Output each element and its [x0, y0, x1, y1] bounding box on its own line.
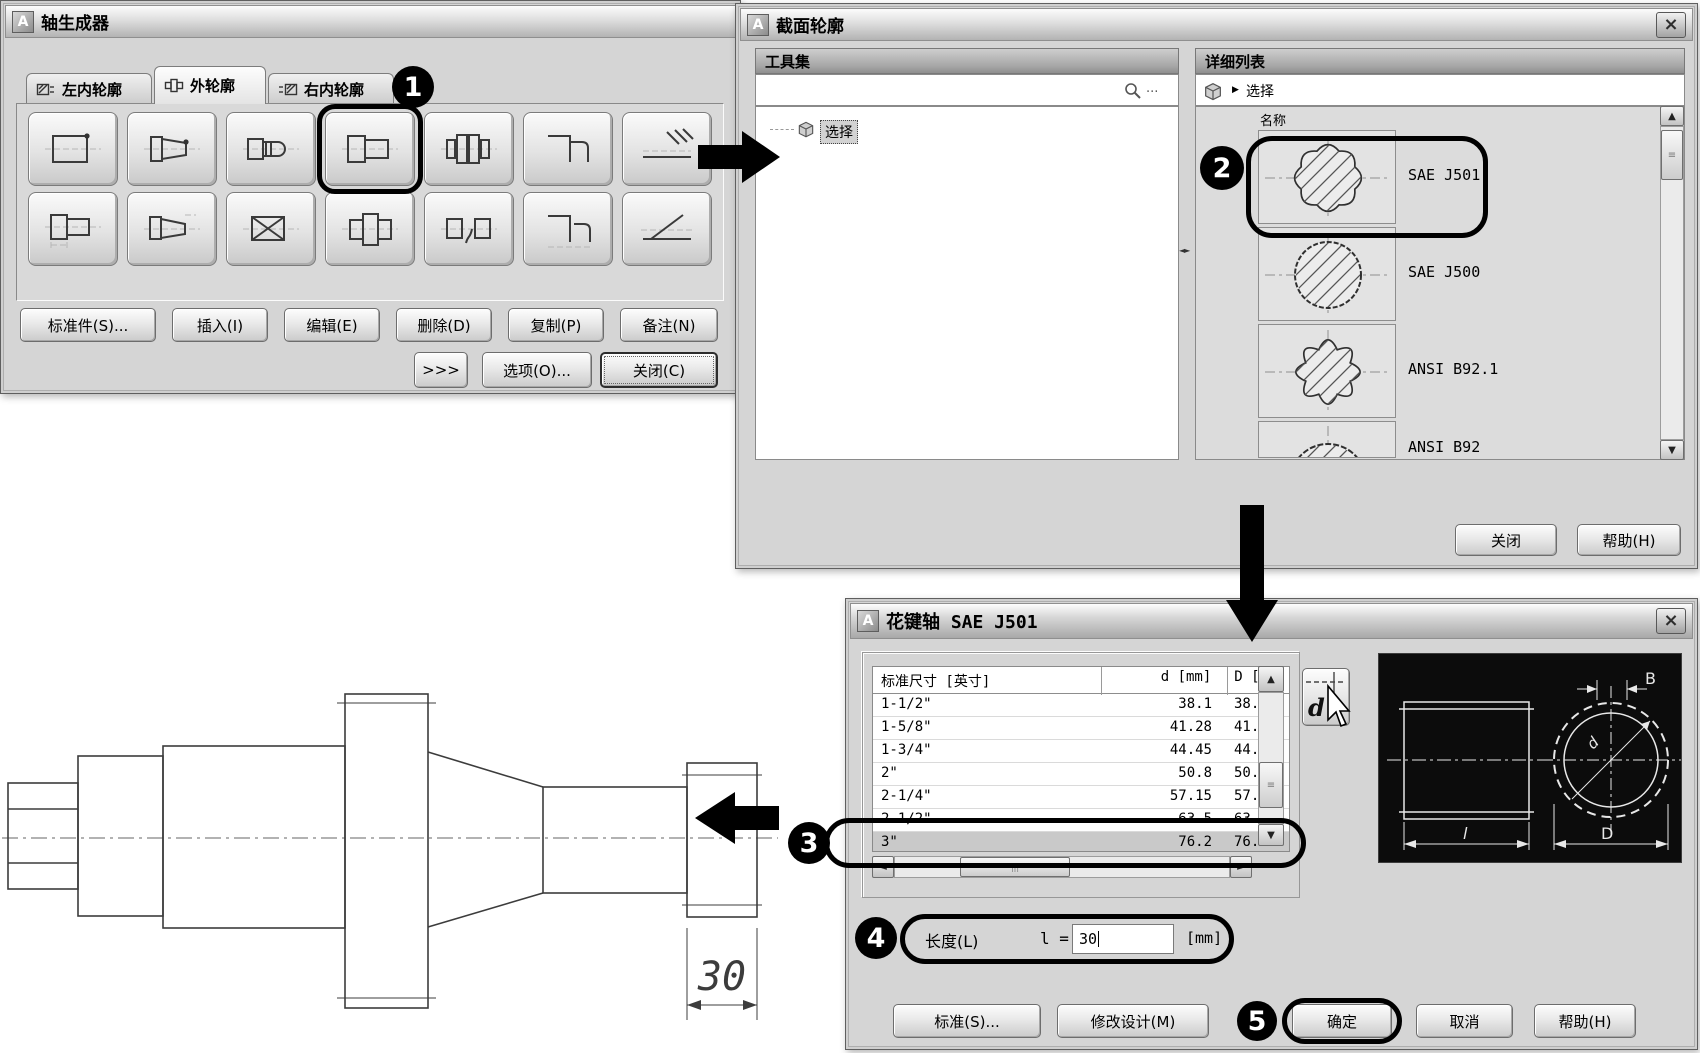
cylinder-icon [41, 127, 105, 171]
tab-outer-profile[interactable]: 外轮廓 [154, 66, 266, 104]
profile-button-shoulder2[interactable] [523, 192, 613, 266]
length-label: 长度(L) [925, 928, 978, 952]
table-row[interactable]: 2"50.850.7 [873, 763, 1289, 786]
length-input[interactable]: 30 [1072, 924, 1174, 954]
search-icon[interactable] [1124, 82, 1142, 100]
profile-button-flange[interactable] [325, 192, 415, 266]
list-item-name[interactable]: SAE J500 [1408, 263, 1480, 281]
thread-run-icon [635, 127, 699, 171]
serrated-profile-thumbnail [1259, 228, 1396, 321]
preview-label-B: B [1645, 669, 1656, 688]
table-row-selected[interactable]: 3"76.276.1 [873, 832, 1289, 852]
standard-button[interactable]: 标准(S)... [893, 1004, 1041, 1038]
toolset-header: 工具集 [755, 48, 1179, 74]
splitter-handle[interactable]: ◄► [1179, 246, 1189, 255]
edit-button[interactable]: 编辑(E) [284, 308, 380, 342]
app-icon: A [857, 610, 879, 632]
list-item-thumb-sae-j500[interactable] [1258, 227, 1396, 321]
spline-profile-thumbnail [1259, 131, 1396, 224]
toolset-tree: 选择 [755, 106, 1179, 460]
cursor-icon [1328, 686, 1349, 726]
partial-profile-thumbnail [1259, 422, 1396, 458]
close-button[interactable]: 关闭 [1455, 524, 1557, 556]
window-title: 截面轮廓 [776, 12, 844, 37]
text-caret [1098, 931, 1099, 947]
col-size: 标准尺寸 [英寸] [873, 669, 1101, 691]
list-scroll-thumb[interactable]: ≡ [1661, 130, 1683, 180]
table-row[interactable]: 1-5/8"41.2841.2 [873, 717, 1289, 740]
profile-button-step-cylinder[interactable] [325, 112, 415, 186]
callout-5: 5 [1237, 1001, 1277, 1041]
tree-item-select[interactable]: 选择 [820, 120, 858, 144]
window-title: 花键轴 SAE J501 [886, 608, 1038, 634]
table-scroll-left[interactable]: ◄ [872, 856, 894, 878]
ok-button[interactable]: 确定 [1292, 1004, 1392, 1038]
lobed-profile-thumbnail [1259, 325, 1396, 418]
callout-2: 2 [1200, 146, 1244, 190]
tab-left-inner-profile[interactable]: 左内轮廓 [26, 73, 152, 104]
arrow-right [698, 131, 780, 183]
insert-button[interactable]: 插入(I) [172, 308, 268, 342]
breadcrumb[interactable]: 选择 [1246, 81, 1274, 101]
profile-button-thread[interactable] [226, 112, 316, 186]
profile-button-chamfer[interactable] [622, 192, 712, 266]
shaft-builder-titlebar[interactable]: A 轴生成器 [5, 5, 736, 38]
detail-list-header: 详细列表 [1195, 48, 1685, 74]
detail-breadcrumb-row: ▶ 选择 [1195, 74, 1685, 106]
standard-parts-button[interactable]: 标准件(S)... [20, 308, 156, 342]
app-icon: A [747, 14, 769, 36]
shaft-drawing: 30 [0, 690, 790, 1040]
table-scroll-up[interactable]: ▲ [1258, 666, 1284, 692]
close-icon[interactable]: × [1656, 608, 1686, 634]
callout-3: 3 [788, 822, 830, 864]
cone-icon [140, 127, 204, 171]
preview-label-D: D [1601, 824, 1613, 843]
right-profile-icon [278, 82, 298, 97]
shoulder2-icon [536, 207, 600, 251]
breadcrumb-arrow-icon: ▶ [1232, 85, 1239, 95]
table-hscroll-thumb[interactable]: ||| [960, 857, 1070, 877]
list-item-name[interactable]: ANSI B92.1 [1408, 360, 1498, 378]
length-unit-label: [mm] [1186, 929, 1222, 947]
profile-button-shoulder[interactable] [523, 112, 613, 186]
flange-icon [338, 207, 402, 251]
copy-button[interactable]: 复制(P) [508, 308, 604, 342]
size-table: 标准尺寸 [英寸] d [mm] D [m 1-1/2"38.138.0 1-5… [872, 666, 1290, 852]
table-row[interactable]: 2-1/4"57.1557.1 [873, 786, 1289, 809]
tab-label: 左内轮廓 [62, 79, 122, 100]
list-item-thumb-ansi-b92[interactable] [1258, 421, 1396, 458]
options-button[interactable]: 选项(O)... [482, 352, 592, 388]
profile-button-step-dim[interactable] [28, 192, 118, 266]
undercut-icon [239, 207, 303, 251]
catalog-icon [1202, 80, 1224, 102]
list-item-name[interactable]: SAE J501 [1408, 166, 1480, 184]
thread-icon [239, 127, 303, 171]
tab-right-inner-profile[interactable]: 右内轮廓 [268, 73, 394, 104]
col-d: d [mm] [1101, 666, 1227, 695]
preview-label-d: d [1583, 733, 1603, 753]
pick-d-icon: d [1302, 668, 1350, 726]
spline-preview: l d B D [1378, 653, 1682, 863]
window-title: 轴生成器 [41, 9, 109, 34]
list-item-thumb-sae-j501[interactable] [1258, 130, 1396, 224]
tab-label: 右内轮廓 [304, 79, 364, 100]
table-row[interactable]: 1-3/4"44.4544.4 [873, 740, 1289, 763]
note-button[interactable]: 备注(N) [620, 308, 718, 342]
shoulder-icon [536, 127, 600, 171]
delete-button[interactable]: 删除(D) [396, 308, 492, 342]
tab-label: 外轮廓 [190, 75, 235, 96]
pick-d-button[interactable]: d [1302, 668, 1350, 726]
break-icon [437, 207, 501, 251]
outer-profile-icon [164, 78, 184, 93]
chamfer-icon [635, 207, 699, 251]
table-row[interactable]: 1-1/2"38.138.0 [873, 694, 1289, 717]
profile-button-break[interactable] [424, 192, 514, 266]
table-scroll-right[interactable]: ► [1230, 856, 1252, 878]
left-profile-icon [36, 82, 56, 97]
search-input[interactable] [760, 79, 1118, 103]
profile-button-collar[interactable] [424, 112, 514, 186]
profile-button-cylinder[interactable] [28, 112, 118, 186]
close-icon[interactable]: × [1656, 12, 1686, 38]
list-item-thumb-ansi-b92-1[interactable] [1258, 324, 1396, 418]
svg-text:d: d [1308, 693, 1325, 722]
step-cylinder-icon [338, 127, 402, 171]
tree-connector [770, 129, 794, 130]
catalog-icon [796, 119, 816, 139]
search-browse-dots[interactable]: ... [1146, 81, 1158, 96]
modify-design-button[interactable]: 修改设计(M) [1057, 1004, 1209, 1038]
arrow-down [1226, 505, 1278, 642]
collar-icon [437, 127, 501, 171]
dimension-30: 30 [697, 954, 746, 1000]
list-scroll-up[interactable]: ▲ [1660, 106, 1684, 126]
arrow-left [695, 792, 779, 844]
help-button[interactable]: 帮助(H) [1534, 1004, 1636, 1038]
cone-dim-icon [140, 207, 204, 251]
table-row[interactable]: 2-1/2"63.563.4 [873, 809, 1289, 832]
table-header-row: 标准尺寸 [英寸] d [mm] D [m [873, 667, 1289, 694]
step-dim-icon [41, 207, 105, 251]
preview-label-l: l [1463, 824, 1468, 843]
toolset-search-row: ... [755, 74, 1179, 106]
help-button[interactable]: 帮助(H) [1577, 524, 1681, 556]
profile-button-cone-dim[interactable] [127, 192, 217, 266]
more-button[interactable]: >>> [414, 352, 468, 388]
close-c-button[interactable]: 关闭(C) [600, 352, 718, 388]
callout-1: 1 [392, 66, 434, 108]
table-scroll-down[interactable]: ▼ [1258, 824, 1284, 846]
callout-4: 4 [855, 917, 897, 959]
name-column-header: 名称 [1260, 110, 1286, 129]
list-item-name[interactable]: ANSI B92 [1408, 438, 1480, 456]
app-icon: A [12, 11, 34, 33]
profile-button-cone[interactable] [127, 112, 217, 186]
cancel-button[interactable]: 取消 [1416, 1004, 1513, 1038]
profile-button-undercut[interactable] [226, 192, 316, 266]
section-profile-titlebar[interactable]: A 截面轮廓 × [740, 8, 1693, 41]
table-scroll-thumb[interactable]: ≡ [1259, 762, 1283, 808]
list-scroll-down[interactable]: ▼ [1660, 440, 1684, 460]
length-var-label: l = [1040, 929, 1069, 948]
